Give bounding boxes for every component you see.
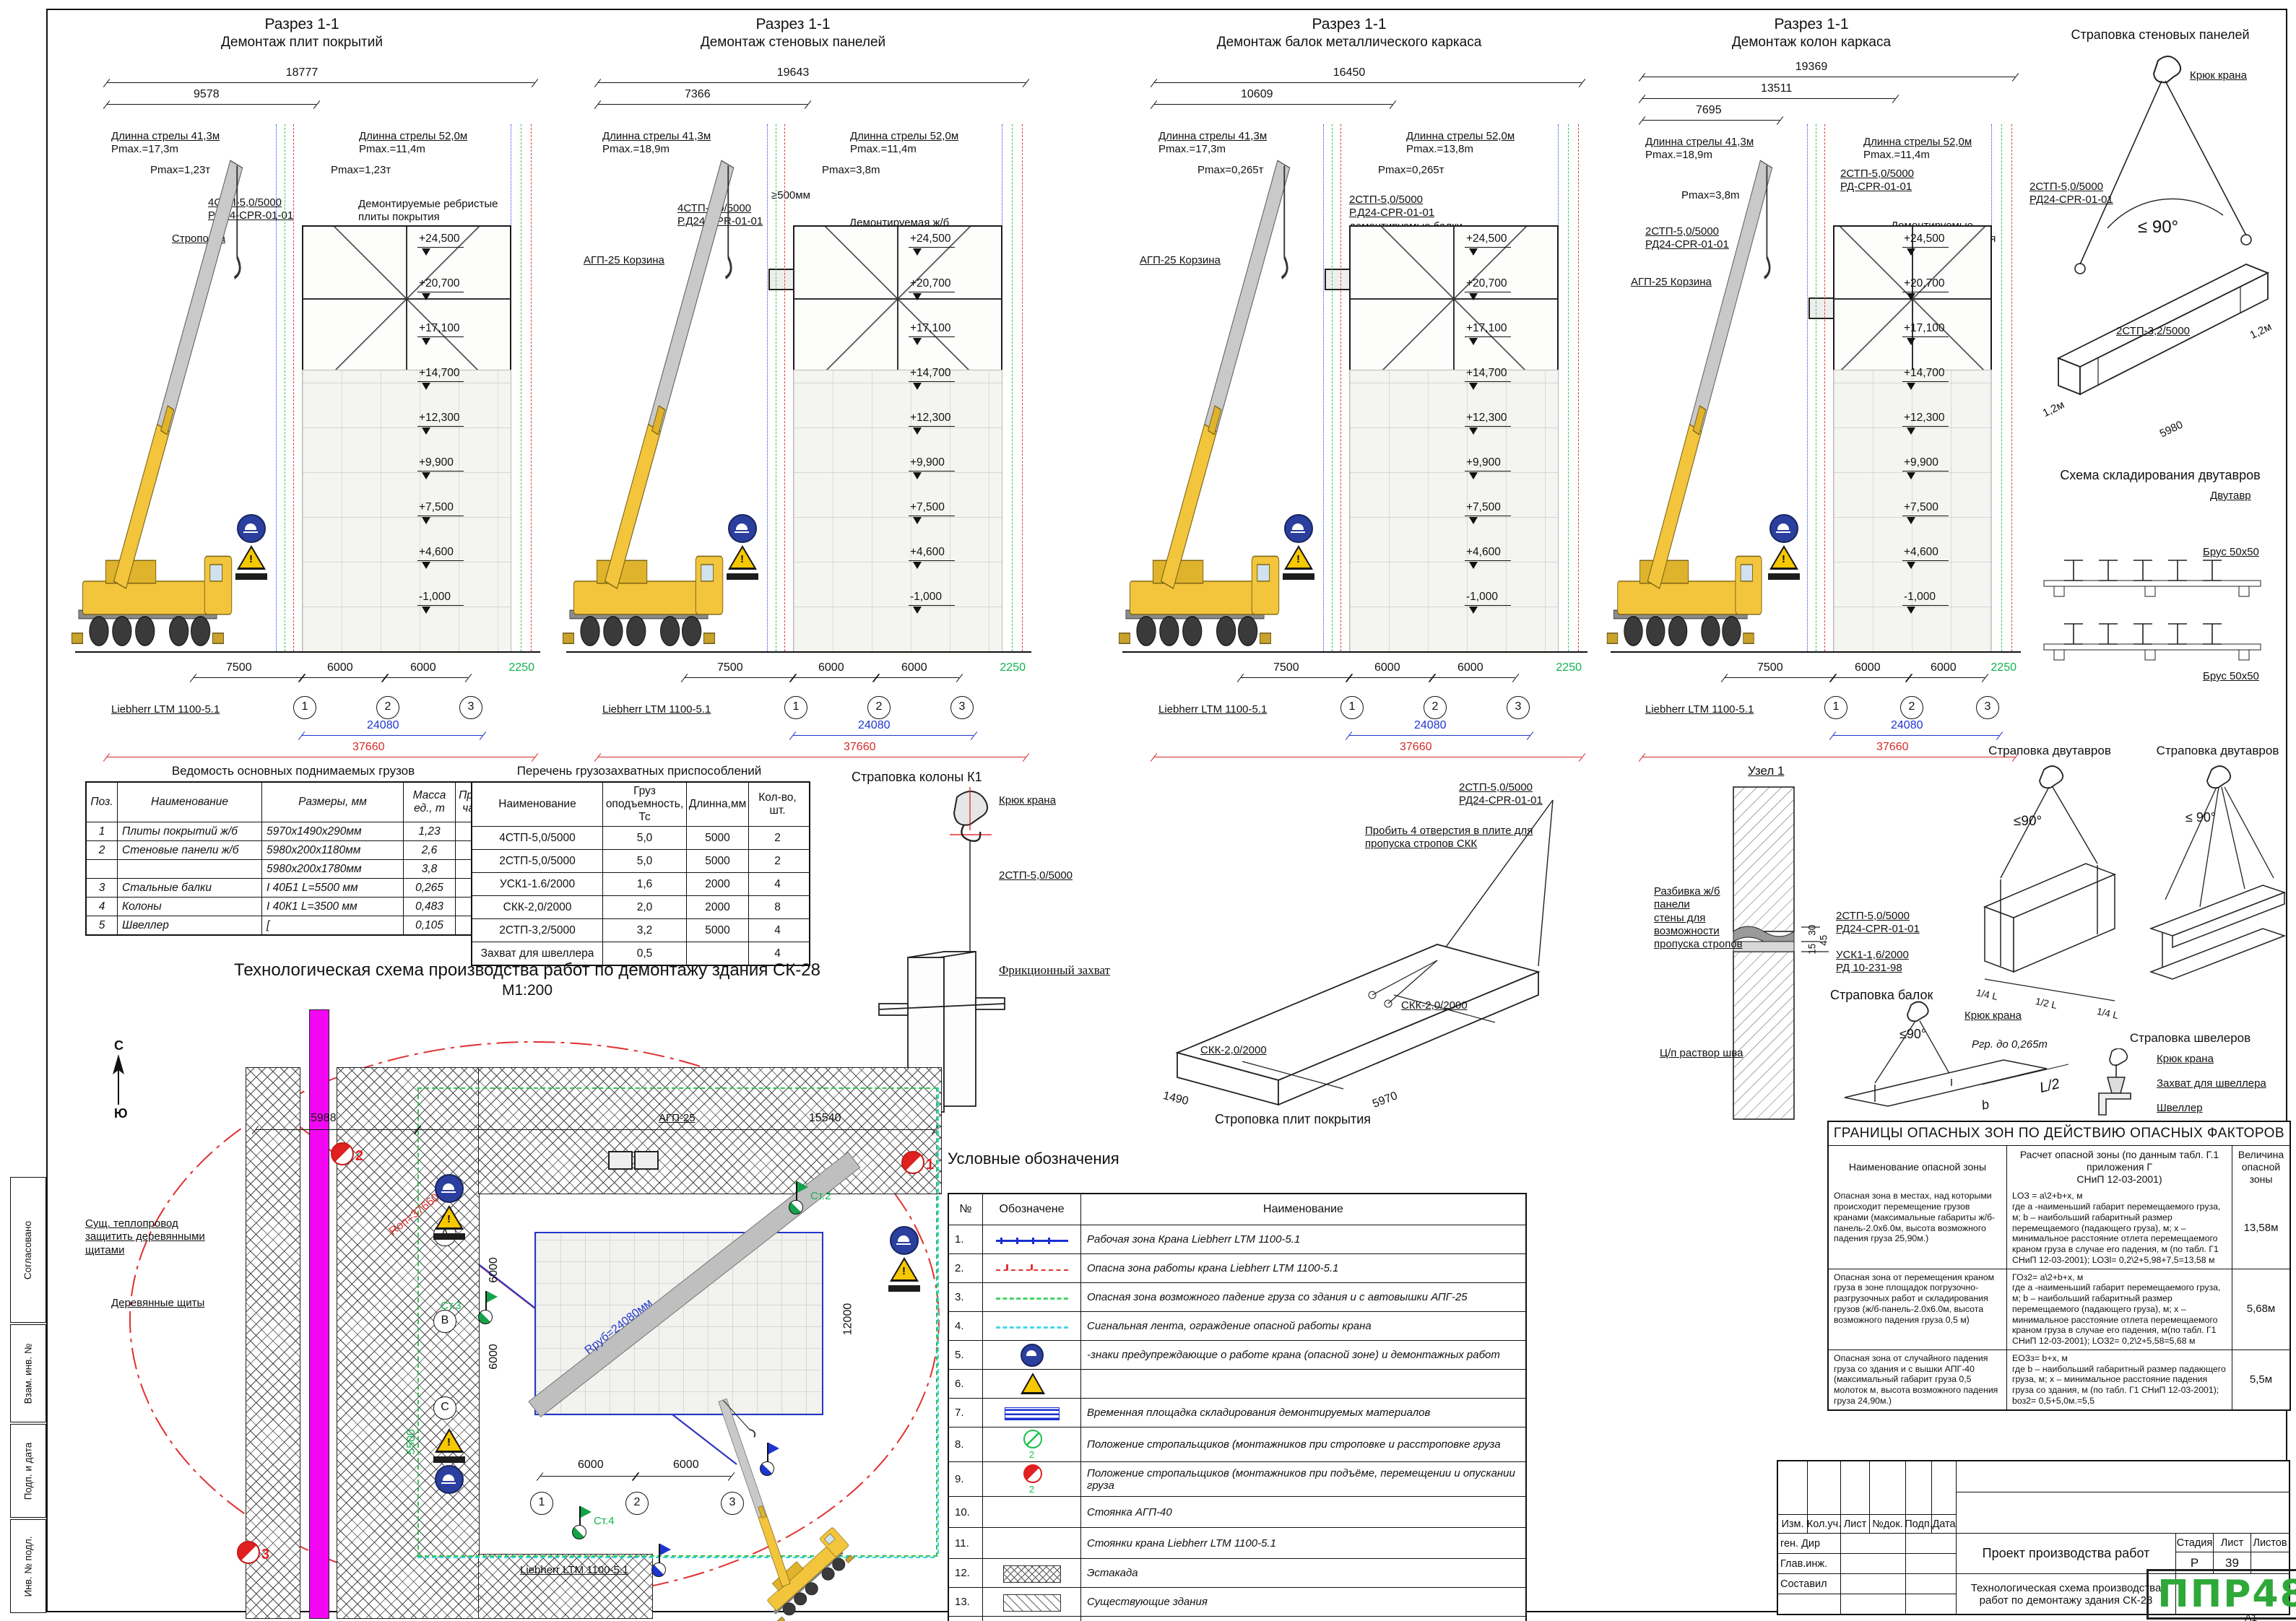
- zone-line-red: [1578, 124, 1579, 651]
- detail-node1: Узел 1 Разбивка ж/б панели стены для воз…: [1654, 764, 1831, 1126]
- item-label: Двутавр: [2210, 490, 2251, 503]
- cell-mass: 3,8: [403, 860, 455, 878]
- legend-number: 13.: [949, 1588, 982, 1616]
- boom-right-label: Длинна стрелы 52,0мPmax.=11,4m: [1863, 136, 2015, 162]
- legend-symbol-icon: [996, 1498, 1068, 1527]
- dim-6000: 6000: [578, 1459, 604, 1472]
- section-title: Разрез 1-1: [1111, 16, 1587, 33]
- elevation-mark: +20,700: [1899, 277, 1980, 322]
- dim-2250: 2250: [1556, 661, 1582, 674]
- zone-line-green: [1568, 124, 1569, 651]
- elevation-mark: +12,300: [1462, 412, 1543, 456]
- callout: Pmax=3,8m: [822, 164, 880, 177]
- zone-line-red: [2011, 124, 2012, 651]
- zone-line-green: [2001, 124, 2002, 651]
- dim-37660: 37660: [844, 741, 876, 754]
- elevation-value: +24,500: [1466, 232, 1507, 245]
- dim-line: [636, 1476, 731, 1477]
- elevation-mark: +24,500: [1899, 232, 1980, 277]
- cell-qty: 2: [748, 827, 806, 849]
- signal-tape: [937, 1087, 939, 1554]
- cell-name: Швеллер: [117, 916, 261, 934]
- col-header: №: [949, 1194, 982, 1225]
- crane-warning-sign-icon: !: [1284, 545, 1313, 570]
- table-row: 5 Швеллер [ 0,105: [87, 916, 503, 934]
- legend-table: № Обозначене Наименование 1. Рабочая зон…: [948, 1193, 1527, 1621]
- dim: 30: [1806, 925, 1818, 936]
- zone-line-green: [1012, 124, 1013, 651]
- legend-row: 2. Опасна зона работы крана Liebherr LTM…: [949, 1253, 1525, 1282]
- warning-signs: !: [888, 1226, 920, 1292]
- cell-pos: 2: [87, 841, 117, 859]
- agp-label: АГП-25: [659, 1112, 696, 1125]
- cell-mass: 1,23: [403, 822, 455, 840]
- dim-line: [194, 677, 302, 678]
- boom-length: Длинна стрелы 52,0м: [1863, 136, 1972, 148]
- dim-15540: 15540: [809, 1112, 841, 1125]
- elevation-value: +24,500: [419, 232, 459, 245]
- tb-podp: Подп.: [1905, 1514, 1931, 1533]
- legend-label: Сигнальная лента, ограждение опасной раб…: [1080, 1312, 1525, 1340]
- dim-line: [1241, 677, 1349, 678]
- sign-plate: [888, 1285, 920, 1292]
- legend-symbol-cell: [982, 1312, 1080, 1340]
- tb-data: Дата: [1931, 1514, 1956, 1533]
- boom-length: Длинна стрелы 52,0м: [359, 130, 467, 142]
- dim-37660: 37660: [1400, 741, 1432, 754]
- dim-line: [793, 677, 876, 678]
- helmet-sign-icon: [237, 514, 266, 543]
- elevation-mark: +17,100: [1899, 322, 1980, 367]
- axis-bubble: 2: [867, 696, 891, 719]
- cell-name: Колоны: [117, 898, 261, 916]
- dim-line: [302, 677, 385, 678]
- rigging-table: Наименование Груз оподъемность, Тс Длинн…: [471, 781, 810, 966]
- tb-list: Лист: [1840, 1514, 1869, 1533]
- legend-symbol-cell: [982, 1559, 1080, 1587]
- stand-label: Ст.3: [441, 1300, 462, 1313]
- cell-qty: 2: [748, 850, 806, 872]
- loads-table-title: Ведомость основных поднимаемых грузов: [85, 764, 501, 778]
- stand-label: Ст.2: [810, 1190, 831, 1203]
- zone-line-blue: [767, 124, 768, 651]
- dim-7500: 7500: [717, 661, 743, 674]
- dim-line: [417, 1129, 935, 1130]
- dim-line: [1642, 120, 1780, 121]
- table-row: 2СТП-5,0/5000 5,0 5000 2: [472, 849, 809, 872]
- elevation-mark: -1,000: [1899, 591, 1980, 635]
- cell-mass: 2,6: [403, 841, 455, 859]
- col-header: Размеры, мм: [261, 783, 403, 822]
- elevation-mark: +9,900: [1462, 456, 1543, 501]
- legend-number: 5.: [949, 1341, 982, 1369]
- axis-bubble: 2: [376, 696, 399, 719]
- danger-table-title: ГРАНИЦЫ ОПАСНЫХ ЗОН ПО ДЕЙСТВИЮ ОПАСНЫХ …: [1829, 1122, 2289, 1146]
- cell-pos: 5: [87, 916, 117, 934]
- note-label: Разбивка ж/б панели стены для возможност…: [1654, 885, 1748, 951]
- section-view-3: Разрез 1-1 Демонтаж балок металлического…: [1111, 16, 1587, 774]
- angle-label: ≤ 90°: [2138, 217, 2178, 238]
- skk-label: СКК-2,0/2000: [1401, 999, 1468, 1012]
- elevation-mark: +7,500: [415, 501, 495, 546]
- section-subtitle: Демонтаж плит покрытий: [64, 35, 540, 51]
- dim-line: [1349, 677, 1432, 678]
- warning-signs: !: [433, 1428, 465, 1494]
- loads-table: Поз. Наименование Размеры, мм Масса ед.,…: [85, 781, 504, 936]
- sling-label: 2СТП-5,0/5000 РД24-CPR-01-01: [2029, 181, 2138, 207]
- dim: 45: [1818, 935, 1829, 946]
- tb-role: ген. Дир: [1778, 1533, 1840, 1553]
- dim-5500: 5500: [405, 1429, 418, 1455]
- zone-line-blue: [1323, 124, 1324, 651]
- detail-title: Страповка двутавров: [2144, 744, 2292, 758]
- legend-row: 12. Эстакада: [949, 1558, 1525, 1587]
- rigger-position-icon: [331, 1142, 354, 1165]
- elevation-value: +12,300: [1466, 412, 1507, 424]
- dim-line: [685, 677, 793, 678]
- elevation-column: +24,500+20,700+17,100+14,700+12,300+9,90…: [1462, 232, 1543, 635]
- tb-cell: [1905, 1594, 1956, 1614]
- elevation-value: +9,900: [1466, 456, 1501, 469]
- elevation-mark: +17,100: [906, 322, 987, 367]
- shields-note: Деревянные щиты: [111, 1297, 204, 1310]
- dim-inner: 9578: [194, 88, 220, 101]
- zone-line-red: [1022, 124, 1023, 651]
- legend-label: Опасная зона возможного падение груза со…: [1080, 1283, 1525, 1311]
- dim-line-red: [1154, 757, 1582, 757]
- detail-title: Страповка колоны К1: [841, 770, 1039, 785]
- axis-bubble: 3: [1976, 696, 1999, 719]
- dim-line: [1725, 677, 1833, 678]
- cell-size: 5980х200х1180мм: [261, 841, 403, 859]
- cell-mass: 0,105: [403, 916, 455, 934]
- warning-signs: !: [1768, 514, 1800, 580]
- ground-line: [1122, 651, 1587, 653]
- dim-6000: 6000: [901, 661, 927, 674]
- dim: 15: [1806, 944, 1818, 955]
- hook-label: Крюк крана: [999, 794, 1056, 807]
- dim-line-blue: [302, 735, 482, 736]
- section-subtitle: Демонтаж балок металлического каркаса: [1111, 35, 1587, 51]
- dim-12000: 12000: [841, 1303, 854, 1336]
- table-row: 3 Стальные балки I 40Б1 L=5500 мм 0,265: [87, 878, 503, 897]
- legend-row: 11. Стоянки крана Liebherr LTM 1100-5.1: [949, 1527, 1525, 1558]
- legend-symbol-icon: [996, 1318, 1068, 1336]
- col-header: Поз.: [87, 783, 117, 822]
- col-header: Наименование опасной зоны: [1829, 1146, 2006, 1188]
- section-title: Разрез 1-1: [64, 16, 540, 33]
- cell-length: 2000: [686, 873, 748, 895]
- legend-row: 13. Существующие здания: [949, 1587, 1525, 1616]
- legend-symbol-cell: [982, 1399, 1080, 1427]
- tb-cell: [1807, 1461, 1840, 1514]
- legend-row: 4. Сигнальная лента, ограждение опасной …: [949, 1311, 1525, 1340]
- heat-note: Сущ. теплопровод защитить деревянными щи…: [85, 1217, 259, 1257]
- tb-role: Глав.инж.: [1778, 1553, 1840, 1573]
- mobile-crane: [1602, 124, 1811, 664]
- tb-cell: [1840, 1533, 1905, 1553]
- legend-label: Стоянки крана Liebherr LTM 1100-5.1: [1080, 1528, 1525, 1558]
- rigging-table-body: 4СТП-5,0/5000 5,0 5000 2 2СТП-5,0/5000 5…: [472, 826, 809, 965]
- tb-cell: [1840, 1553, 1905, 1573]
- dim-line: [598, 104, 807, 105]
- boom-pmax: Pmax.=11,4m: [1863, 149, 1930, 161]
- sign-plate: [1283, 573, 1314, 580]
- dim-total: 19643: [555, 66, 1031, 79]
- callout: Демонтируемые ребристые плиты покрытия: [358, 198, 514, 225]
- elevation-column: +24,500+20,700+17,100+14,700+12,300+9,90…: [1899, 232, 1980, 635]
- legend-number: 11.: [949, 1528, 982, 1558]
- legend-symbol-cell: 2: [982, 1427, 1080, 1461]
- tb-cell: [1956, 1492, 2289, 1533]
- boom-pmax: Pmax.=13,8m: [1406, 143, 1473, 155]
- dim-line: [876, 677, 959, 678]
- zone-line-blue: [276, 124, 277, 651]
- cell-length: 5000: [686, 827, 748, 849]
- axis-bubble: 1: [530, 1492, 553, 1515]
- detail-title: Страповка стеновых панелей: [2029, 27, 2291, 43]
- axis-bubble: 3: [459, 696, 482, 719]
- legend-row: 6.: [949, 1369, 1525, 1398]
- section-view-1: Разрез 1-1 Демонтаж плит покрытий 18777 …: [64, 16, 540, 774]
- legend-symbol-icon: [996, 1373, 1068, 1397]
- mobile-crane: [66, 124, 283, 664]
- elevation-value: +9,900: [419, 456, 454, 469]
- legend-label: Рабочая зона Крана Liebherr LTM 1100-5.1: [1080, 1225, 1525, 1253]
- tb-cell: [1840, 1573, 1905, 1594]
- estacada-strip: [246, 1067, 300, 1619]
- plan-title: Технологическая схема производства работ…: [195, 960, 859, 981]
- elevation-mark: +4,600: [415, 546, 495, 591]
- loads-table-header: Поз. Наименование Размеры, мм Масса ед.,…: [87, 783, 503, 822]
- dim-7500: 7500: [1757, 661, 1783, 674]
- dim-line: [1642, 77, 2015, 77]
- boom-right-label: Длинна стрелы 52,0мPmax.=11,4m: [850, 130, 1005, 157]
- table-row: УСК1-1.6/2000 1,6 2000 4: [472, 872, 809, 895]
- ibeam-sketch: [2144, 762, 2292, 1022]
- dim-line: [1833, 677, 1909, 678]
- elevation-value: -1,000: [910, 591, 942, 603]
- cell-pos: 1: [87, 822, 117, 840]
- legend-number: 6.: [949, 1370, 982, 1398]
- frame-label-vzam: Взам. инв. №: [10, 1324, 46, 1422]
- cell-capacity: 1,6: [602, 873, 686, 895]
- zone-name: Опасная зона в местах, над которыми прои…: [1829, 1188, 2006, 1268]
- elevation-mark: +24,500: [1462, 232, 1543, 277]
- zone-line-green: [1816, 124, 1816, 651]
- note-label: Ц/п раствор шва: [1660, 1047, 1743, 1060]
- danger-table-body: Опасная зона в местах, над которыми прои…: [1829, 1188, 2289, 1409]
- dim-line-blue: [793, 735, 974, 736]
- legend-symbol-icon: [996, 1290, 1068, 1307]
- legend-symbol-sub: 2: [1029, 1484, 1034, 1495]
- dim-line: [540, 1476, 636, 1477]
- rigging-table-title: Перечень грузозахватных приспособлений: [471, 764, 807, 778]
- elevation-mark: +4,600: [1899, 546, 1980, 591]
- legend-row: 9. 2 Положение стропальщиков (монтажнико…: [949, 1461, 1525, 1496]
- col-header: Масса ед., т: [403, 783, 455, 822]
- helmet-sign-icon: [890, 1226, 919, 1255]
- elevation-value: +7,500: [1466, 501, 1501, 513]
- legend-label: Эстакада: [1080, 1559, 1525, 1587]
- col-header: Величина опасной зоны: [2232, 1146, 2289, 1188]
- cell-mass: 0,483: [403, 898, 455, 916]
- dim-6000: 6000: [1855, 661, 1881, 674]
- legend-row: 14. Существующий теплопровод: [949, 1616, 1525, 1621]
- zone-value: 13,58м: [2232, 1188, 2289, 1268]
- axis-bubble: 3: [1507, 696, 1530, 719]
- cell-name: Плиты покрытий ж/б: [117, 822, 261, 840]
- elevation-mark: +9,900: [906, 456, 987, 501]
- crane-warning-sign-icon: !: [435, 1428, 464, 1453]
- dim-6000: 6000: [410, 661, 436, 674]
- callout: Pmax=0,265т: [1378, 164, 1444, 177]
- zone-value: 5,68м: [2232, 1269, 2289, 1350]
- zone-calc: LОЗ = a\2+b+х, м где а -наименьший габар…: [2006, 1188, 2232, 1268]
- zone-name: Опасная зона от случайного падения груза…: [1829, 1350, 2006, 1409]
- ppr48-logo: ППР48: [2146, 1569, 2296, 1620]
- tb-cell: [1778, 1461, 1807, 1514]
- elevation-value: -1,000: [1466, 591, 1498, 603]
- rigger-position-icon: [901, 1151, 924, 1174]
- cell-pos: 3: [87, 879, 117, 897]
- dim-6000: 6000: [1457, 661, 1483, 674]
- elevation-mark: -1,000: [415, 591, 495, 635]
- helmet-sign-icon: [1284, 514, 1313, 543]
- legend-symbol-cell: [982, 1341, 1080, 1369]
- sign-plate: [235, 573, 267, 580]
- cell-mass: 0,265: [403, 879, 455, 897]
- zone-line-green: [521, 124, 521, 651]
- elevation-value: +20,700: [1904, 277, 1944, 290]
- detail-wall-panel-strapping: Страповка стеновых панелей Крюк крана 2С…: [2029, 27, 2291, 461]
- elevation-mark: +17,100: [415, 322, 495, 367]
- elevation-value: +12,300: [910, 412, 950, 424]
- elevation-mark: +9,900: [1899, 456, 1980, 501]
- dim-line-blue: [1349, 735, 1530, 736]
- frame-label-agreed: Согласовано: [10, 1177, 46, 1323]
- cell-size: I 40Б1 L=5500 мм: [261, 879, 403, 897]
- tb-koluch: Кол.уч.: [1807, 1514, 1840, 1533]
- elevation-value: +17,100: [1904, 322, 1944, 334]
- callout: ≥500мм: [771, 189, 810, 202]
- legend-number: 10.: [949, 1497, 982, 1527]
- elevation-value: +20,700: [910, 277, 950, 290]
- tb-cell: [1956, 1461, 2289, 1492]
- section-title: Разрез 1-1: [555, 16, 1031, 33]
- detail-title: Строповка плит покрытия: [1177, 1112, 1408, 1127]
- cell-size: I 40К1 L=3500 мм: [261, 898, 403, 916]
- axis-bubble: 1: [784, 696, 807, 719]
- col-header: Груз оподъемность, Тс: [602, 783, 686, 826]
- item-label: Швеллер: [2157, 1102, 2203, 1115]
- legend-symbol-icon: [996, 1261, 1068, 1278]
- boom-pmax: Pmax.=11,4m: [850, 143, 917, 155]
- elevation-mark: +24,500: [906, 232, 987, 277]
- legend-symbol-cell: [982, 1617, 1080, 1621]
- crane-model-label: Liebherr LTM 1100-5.1: [602, 703, 761, 716]
- dim-line-red: [107, 757, 534, 757]
- dim-2250: 2250: [1990, 661, 2016, 674]
- danger-table-header: Наименование опасной зоны Расчет опасной…: [1829, 1146, 2289, 1188]
- tb-doc-title: Технологическая схема производства работ…: [1956, 1573, 2175, 1614]
- agp-basket: [634, 1151, 659, 1170]
- cell-size: 5980х200х1780мм: [261, 860, 403, 878]
- section-title: Разрез 1-1: [1602, 16, 2021, 33]
- legend-label: -знаки предупреждающие о работе крана (о…: [1080, 1341, 1525, 1369]
- crane-model-label: Liebherr LTM 1100-5.1: [111, 703, 270, 716]
- axis-bubble: 2: [625, 1492, 649, 1515]
- elevation-mark: +14,700: [415, 367, 495, 412]
- dim-line: [256, 1129, 417, 1130]
- dim-total: 16450: [1111, 66, 1587, 79]
- rigger-position-icon: [237, 1541, 260, 1564]
- dim-line: [1642, 98, 1895, 99]
- elevation-value: +12,300: [419, 412, 459, 424]
- zone-line-red: [1824, 124, 1825, 651]
- detail-title: Страповка швелеров: [2087, 1031, 2293, 1046]
- cell-name: СКК-2,0/2000: [472, 896, 602, 918]
- dim-line-blue: [1833, 735, 1999, 736]
- legend-symbol-icon: [996, 1464, 1068, 1485]
- hook-label: Крюк крана: [2190, 69, 2247, 82]
- zone-line-green: [776, 124, 776, 651]
- tb-stage-label: Стадия: [2175, 1533, 2213, 1552]
- legend-symbol-icon: [996, 1594, 1068, 1612]
- elevation-value: +9,900: [910, 456, 945, 469]
- legend-row: 8. 2 Положение стропальщиков (монтажнико…: [949, 1427, 1525, 1461]
- helmet-sign-icon: [435, 1465, 464, 1494]
- legend-symbol-cell: [982, 1588, 1080, 1616]
- wall-panel-sketch: [2029, 48, 2291, 459]
- helmet-sign-icon: [728, 514, 757, 543]
- legend-number: 1.: [949, 1225, 982, 1253]
- zone-line-green: [285, 124, 285, 651]
- cell-name: УСК1-1.6/2000: [472, 873, 602, 895]
- tb-cell: [1840, 1594, 1905, 1614]
- site-plan: С Ю Rоп=37660мм Rруб=24080мм Liebherr LT…: [72, 1009, 943, 1619]
- elevation-mark: +4,600: [1462, 546, 1543, 591]
- legend-row: 3. Опасная зона возможного падение груза…: [949, 1282, 1525, 1311]
- legend-symbol-cell: 2: [982, 1462, 1080, 1496]
- legend-label: Существующие здания: [1080, 1588, 1525, 1616]
- elevation-mark: +17,100: [1462, 322, 1543, 367]
- dim-inner: 13511: [1761, 82, 1792, 95]
- dim-6000: 6000: [488, 1257, 501, 1283]
- tb-izm: Изм.: [1778, 1514, 1807, 1533]
- detail-title: Узел 1: [1748, 764, 1784, 779]
- axis-bubble: 3: [950, 696, 974, 719]
- boom-length: Длинна стрелы 52,0м: [850, 130, 958, 142]
- elevation-value: -1,000: [1904, 591, 1936, 603]
- tb-project: Проект производства работ: [1956, 1533, 2175, 1573]
- detail-title: Страповка двутавров: [1963, 744, 2136, 758]
- legend-row: 10. Стоянка АГП-40: [949, 1496, 1525, 1527]
- legend-symbol-cell: [982, 1254, 1080, 1282]
- legend-row: 1. Рабочая зона Крана Liebherr LTM 1100-…: [949, 1225, 1525, 1253]
- table-row: 2 Стеновые панели ж/б 5980х200х1180мм 2,…: [87, 840, 503, 859]
- legend-body: 1. Рабочая зона Крана Liebherr LTM 1100-…: [949, 1225, 1525, 1621]
- elevation-value: +7,500: [910, 501, 945, 513]
- mobile-crane: [558, 124, 774, 664]
- axis-bubble: С: [433, 1396, 456, 1420]
- legend-symbol-icon: [996, 1405, 1068, 1422]
- sign-plate: [727, 573, 758, 580]
- elevation-mark: +7,500: [1899, 501, 1980, 546]
- skk-label: СКК-2,0/2000: [1200, 1044, 1267, 1057]
- axis-bubble: 1: [1340, 696, 1364, 719]
- legend-label: [1080, 1370, 1525, 1398]
